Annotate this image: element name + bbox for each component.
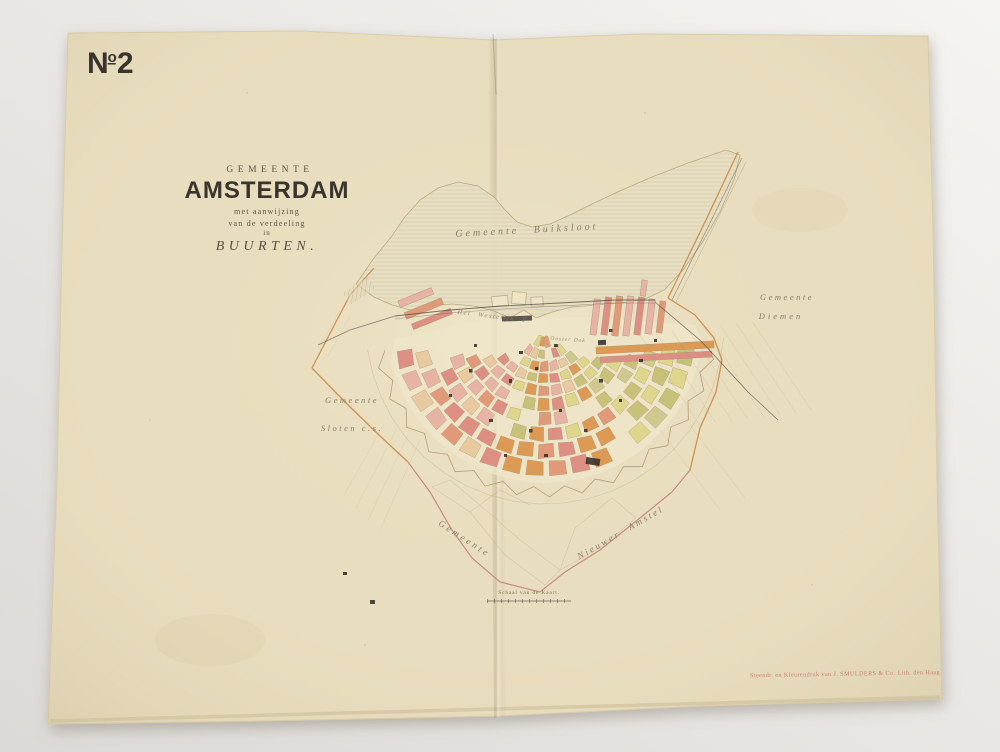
map-sheet: No2 GEMEENTE AMSTERDAM met aanwijzing va…: [48, 31, 942, 724]
label-gemeente-diemen-2: Diemen: [758, 311, 803, 321]
title-buurten: BUURTEN.: [216, 239, 319, 254]
title-sub1: met aanwijzing: [234, 207, 300, 216]
label-gemeente-diemen-1: Gemeente: [760, 292, 814, 302]
title-sub3: in: [263, 229, 270, 237]
photo-backdrop: No2 GEMEENTE AMSTERDAM met aanwijzing va…: [0, 0, 1000, 752]
scale-caption: Schaal van de Kaart.: [498, 590, 560, 596]
title-gemeente: GEMEENTE: [226, 165, 313, 175]
title-amsterdam: AMSTERDAM: [185, 177, 350, 204]
title-sub2: van de verdeeling: [228, 219, 305, 228]
label-gemeente-sloten-1: Gemeente: [325, 395, 379, 405]
label-gemeente-sloten-2: Sloten c.s.: [321, 423, 383, 433]
